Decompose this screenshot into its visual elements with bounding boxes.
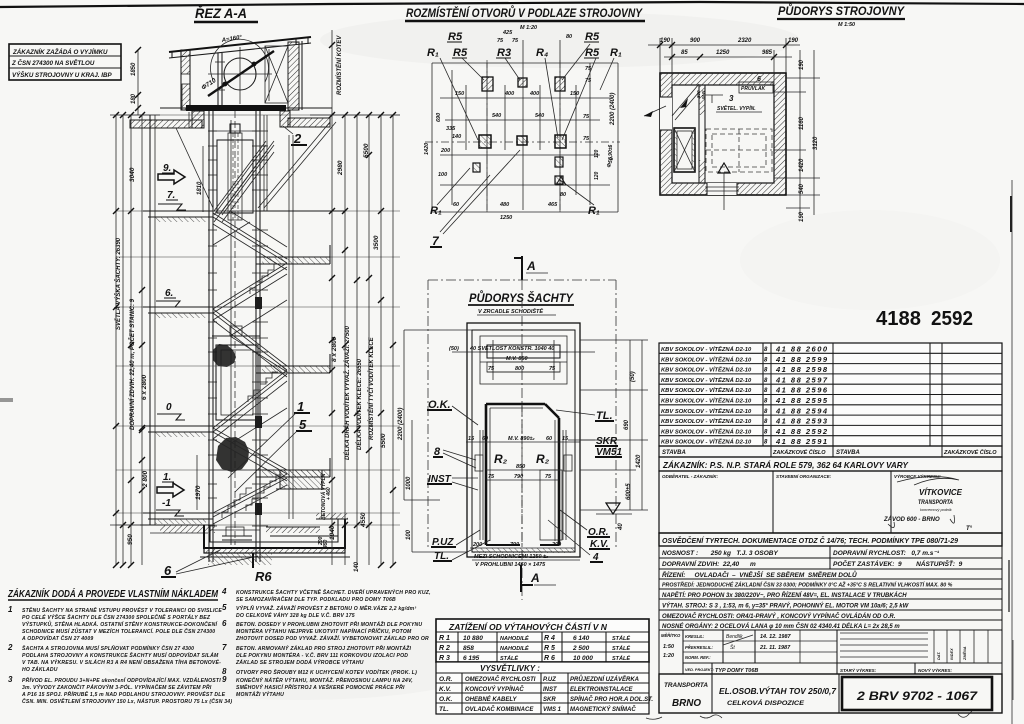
- svg-text:14. 12. 1987: 14. 12. 1987: [760, 634, 792, 640]
- svg-text:4: 4: [221, 587, 227, 596]
- svg-text:ŘEZ A-A: ŘEZ A-A: [195, 4, 247, 21]
- svg-text:KBV SOKOLOV - VÍTĚZNÁ D2-10: KBV SOKOLOV - VÍTĚZNÁ D2-10: [661, 417, 752, 425]
- svg-text:R6: R6: [255, 569, 272, 584]
- svg-text:KBV SOKOLOV - VÍTĚZNÁ D2-10: KBV SOKOLOV - VÍTĚZNÁ D2-10: [661, 407, 752, 415]
- svg-text:2320: 2320: [737, 38, 752, 44]
- svg-text:ROZMÍSTĚNÍ TYČÍ VODÍTEK KLECE: ROZMÍSTĚNÍ TYČÍ VODÍTEK KLECE: [367, 336, 375, 440]
- svg-text:41 88 2593: 41 88 2593: [775, 417, 829, 426]
- svg-text:R5: R5: [453, 47, 468, 59]
- svg-text:O.K.: O.K.: [439, 696, 453, 703]
- svg-text:MEZI SCHODNICEMI 1250 ±₂: MEZI SCHODNICEMI 1250 ±₂: [474, 554, 548, 560]
- svg-text:A ODPOVÍDAT ČSN 27 4009: A ODPOVÍDAT ČSN 27 4009: [21, 634, 93, 642]
- svg-text:2 BRV 9702 - 1067: 2 BRV 9702 - 1067: [856, 689, 979, 703]
- svg-text:K.V.: K.V.: [439, 686, 451, 693]
- svg-text:540: 540: [492, 113, 501, 119]
- svg-text:465: 465: [547, 202, 558, 208]
- svg-text:koncernový podnik: koncernový podnik: [920, 508, 953, 512]
- svg-text:ODBĚRATEL - ZÁKAZNÍK:: ODBĚRATEL - ZÁKAZNÍK:: [662, 472, 719, 479]
- svg-text:950: 950: [127, 534, 134, 545]
- svg-text:PŘÍVOD EL. PROUDU 3+N+PE ukonč: PŘÍVOD EL. PROUDU 3+N+PE ukončenÍ ODPOVÍ…: [22, 676, 221, 684]
- svg-text:1970: 1970: [195, 485, 202, 500]
- svg-text:NORM. REF.:: NORM. REF.:: [685, 655, 711, 660]
- svg-text:STĚNU ŠACHTY NA STRANĚ VSTUPU: STĚNU ŠACHTY NA STRANĚ VSTUPU PROVÉST V …: [22, 606, 222, 614]
- svg-text:R 6: R 6: [544, 655, 555, 662]
- svg-text:75: 75: [488, 474, 495, 480]
- svg-text:R5: R5: [585, 31, 600, 43]
- svg-text:3: 3: [729, 94, 734, 103]
- svg-text:41 88 2591: 41 88 2591: [775, 437, 829, 446]
- svg-text:150: 150: [570, 91, 579, 97]
- svg-text:ZÁKAZNÍK: P.S. N.P. STARÁ ROL: ZÁKAZNÍK: P.S. N.P. STARÁ ROLE 579, 362 …: [662, 460, 909, 470]
- svg-text:CELKOVÁ DISPOZICE: CELKOVÁ DISPOZICE: [727, 700, 805, 707]
- svg-text:R₁: R₁: [610, 47, 622, 59]
- svg-text:41 88 2594: 41 88 2594: [775, 406, 829, 415]
- svg-text:MONTÉRA VÝTAHU NEJPRVE UKOTVIT: MONTÉRA VÝTAHU NEJPRVE UKOTVIT NAPÍNACÍ …: [236, 627, 412, 635]
- svg-text:75: 75: [549, 366, 556, 372]
- svg-text:DÉLKA VODÍTEK KLECE: 26550: DÉLKA VODÍTEK KLECE: 26550: [355, 358, 363, 450]
- svg-text:140: 140: [452, 134, 461, 140]
- svg-text:800: 800: [515, 366, 524, 372]
- svg-text:6.: 6.: [165, 288, 173, 299]
- svg-text:M.V. 850: M.V. 850: [506, 356, 528, 362]
- svg-text:7: 7: [222, 643, 227, 652]
- svg-text:ZAKÁZKOVÉ ČÍSLO: ZAKÁZKOVÉ ČÍSLO: [772, 448, 826, 456]
- svg-text:985: 985: [762, 50, 773, 56]
- svg-text:ŠACHTA A STROJOVNA MUSÍ SPLŇOV: ŠACHTA A STROJOVNA MUSÍ SPLŇOVAT PODMÍNK…: [22, 644, 194, 652]
- svg-text:VYSVĚTLIVKY :: VYSVĚTLIVKY :: [480, 664, 540, 673]
- svg-text:A P16 15 SPOJ. PŘÍRUBĚ 1,5 m N: A P16 15 SPOJ. PŘÍRUBĚ 1,5 m NAD PODLAHO…: [21, 690, 226, 698]
- svg-text:6 195: 6 195: [463, 655, 480, 662]
- svg-text:NOSNOST : 250 kg T.J.: NOSNOST : 250 kg T.J. 3 OSOBY: [662, 550, 778, 557]
- svg-text:DÉLKA DRÁH VODÍTEK VYVAŽ. ZÁVA: DÉLKA DRÁH VODÍTEK VYVAŽ. ZÁVAŽÍ: 27500: [343, 325, 351, 460]
- svg-text:5: 5: [222, 603, 227, 612]
- svg-text:41 88 2599: 41 88 2599: [775, 355, 829, 364]
- svg-text:V TAB. NA VÝKRESU. V SILÁCH R3: V TAB. NA VÝKRESU. V SILÁCH R3 A R4 NENÍ…: [22, 658, 221, 666]
- svg-text:60: 60: [453, 202, 459, 208]
- svg-text:R 2: R 2: [439, 645, 450, 652]
- svg-text:STÁLÉ: STÁLÉ: [612, 634, 630, 642]
- svg-text:SKR: SKR: [543, 697, 556, 703]
- svg-text:R5: R5: [448, 31, 463, 43]
- svg-text:21. 11. 1987: 21. 11. 1987: [759, 645, 791, 651]
- svg-text:6 x 2800: 6 x 2800: [141, 374, 148, 400]
- svg-text:40 SVĚTLOST KONSTR. 1040 40: 40 SVĚTLOST KONSTR. 1040 40: [469, 344, 554, 352]
- svg-text:2 500: 2 500: [572, 645, 590, 652]
- svg-text:140: 140: [354, 561, 360, 572]
- svg-text:KONSTRUKCE ŠACHTY VČETNĚ ŠACHE: KONSTRUKCE ŠACHTY VČETNĚ ŠACHET. DVEŘÍ U…: [236, 588, 431, 596]
- svg-text:M 1:20: M 1:20: [520, 25, 537, 31]
- svg-text:KBV SOKOLOV - VÍTĚZNÁ D2-10: KBV SOKOLOV - VÍTĚZNÁ D2-10: [661, 427, 752, 435]
- svg-text:-1: -1: [162, 498, 171, 509]
- svg-text:VÝPLŇ VYVAŽ. ZÁVAŽÍ PROVÉST Z: VÝPLŇ VYVAŽ. ZÁVAŽÍ PROVÉST Z BETONU O M…: [236, 604, 416, 612]
- svg-text:2: 2: [7, 643, 13, 652]
- svg-text:STAVEBNÍ ORGANIZACE:: STAVEBNÍ ORGANIZACE:: [776, 473, 832, 479]
- svg-text:100: 100: [406, 529, 412, 540]
- svg-text:KBV SOKOLOV - VÍTĚZNÁ D2-10: KBV SOKOLOV - VÍTĚZNÁ D2-10: [661, 366, 752, 374]
- svg-text:NAHODILÉ: NAHODILÉ: [500, 644, 529, 652]
- svg-text:120: 120: [594, 171, 600, 180]
- svg-text:SPÍNAČ PRO HOR.A DOL.ST.: SPÍNAČ PRO HOR.A DOL.ST.: [570, 695, 653, 703]
- svg-text:A: A: [530, 571, 540, 585]
- svg-text:DOPRAVNÍ ZDVIH: 22,40 m: DOPRAVNÍ ZDVIH: 22,40 m: [662, 559, 756, 568]
- svg-text:1.: 1.: [163, 472, 171, 483]
- svg-text:BRNO: BRNO: [672, 698, 701, 709]
- svg-text:M.N.: M.N.: [701, 90, 706, 100]
- svg-text:900: 900: [690, 38, 701, 44]
- svg-text:75: 75: [585, 78, 592, 84]
- svg-text:OTVORY PRO ŠROUBY M12 K UCHYCE: OTVORY PRO ŠROUBY M12 K UCHYCENÍ KOTEV V…: [236, 668, 417, 676]
- svg-text:ZAKÁZKOVÉ ČÍSLO: ZAKÁZKOVÉ ČÍSLO: [943, 448, 997, 456]
- svg-text:KONCOVÝ VYPÍNAČ: KONCOVÝ VYPÍNAČ: [465, 685, 524, 693]
- svg-text:1040: 1040: [329, 525, 336, 540]
- svg-text:R3: R3: [497, 47, 511, 59]
- svg-text:200: 200: [472, 542, 482, 548]
- svg-text:INDEX: INDEX: [950, 648, 954, 660]
- svg-text:40: 40: [618, 523, 624, 531]
- svg-text:150: 150: [455, 91, 464, 97]
- svg-text:R₁: R₁: [588, 205, 600, 217]
- svg-text:V ZRCADLE SCHODIŠTĚ: V ZRCADLE SCHODIŠTĚ: [478, 307, 543, 315]
- svg-text:+ 460: + 460: [326, 487, 332, 500]
- svg-text:VÍTKOVICE: VÍTKOVICE: [919, 487, 962, 497]
- svg-text:STAVBA: STAVBA: [662, 450, 686, 456]
- svg-text:200: 200: [551, 542, 561, 548]
- svg-text:T°: T°: [966, 526, 973, 532]
- svg-text:400: 400: [529, 91, 539, 97]
- svg-text:1:20: 1:20: [663, 653, 674, 659]
- svg-text:3040: 3040: [129, 167, 136, 182]
- svg-text:6: 6: [164, 563, 172, 578]
- svg-text:4550: 4550: [360, 512, 367, 528]
- svg-text:1:50: 1:50: [663, 644, 674, 650]
- svg-text:41 88 2598: 41 88 2598: [775, 365, 829, 374]
- svg-text:R 3: R 3: [439, 655, 450, 662]
- svg-text:OHEBNÉ KABELY: OHEBNÉ KABELY: [465, 695, 518, 703]
- svg-text:SMĚHOVÝ HASICÍ PŘÍSTROJ A VEŠK: SMĚHOVÝ HASICÍ PŘÍSTROJ A VEŠKERÉ POMOCN…: [236, 683, 405, 691]
- svg-text:75: 75: [583, 114, 590, 120]
- svg-text:120: 120: [594, 149, 600, 158]
- svg-text:O.R.: O.R.: [439, 676, 453, 683]
- svg-text:15: 15: [562, 436, 569, 442]
- svg-text:STÁLÉ: STÁLÉ: [612, 654, 630, 662]
- svg-text:POČET ZASTÁVEK: 9 NÁST: POČET ZASTÁVEK: 9 NÁSTUPIŠŤ: 9: [833, 559, 963, 568]
- svg-text:2: 2: [293, 131, 302, 146]
- svg-text:R 4: R 4: [544, 635, 555, 642]
- svg-text:KBV SOKOLOV - VÍTĚZNÁ D2-10: KBV SOKOLOV - VÍTĚZNÁ D2-10: [661, 355, 752, 363]
- svg-text:ZHOTOVIT DOSED POD VYVAŽ. ZÁVA: ZHOTOVIT DOSED POD VYVAŽ. ZÁVAŽÍ. VYBETO…: [235, 634, 429, 642]
- svg-text:450: 450: [323, 539, 329, 549]
- svg-text:6: 6: [222, 619, 227, 628]
- svg-text:R₁: R₁: [430, 205, 442, 217]
- svg-text:MONTÁŽI VÝTAHU: MONTÁŽI VÝTAHU: [236, 690, 284, 698]
- svg-text:ZMĚNA: ZMĚNA: [962, 646, 967, 661]
- svg-text:VÝŠKU STROJOVNY U KRAJ. IBP: VÝŠKU STROJOVNY U KRAJ. IBP: [12, 71, 112, 79]
- svg-text:STÁLÉ: STÁLÉ: [612, 644, 630, 652]
- svg-text:ZÁKAZNÍK ZAŽÁDÁ O VYJÍMKU: ZÁKAZNÍK ZAŽÁDÁ O VYJÍMKU: [12, 48, 108, 56]
- svg-text:80: 80: [560, 192, 566, 198]
- svg-text:M.V. 890±₂: M.V. 890±₂: [508, 436, 535, 442]
- svg-text:0: 0: [166, 402, 172, 413]
- svg-text:85: 85: [681, 50, 688, 56]
- svg-text:DAT.: DAT.: [937, 652, 941, 660]
- svg-text:1420: 1420: [636, 454, 642, 468]
- svg-text:1250: 1250: [500, 215, 512, 221]
- svg-text:BETON. ARMOVANÝ ZÁKLAD PRO STR: BETON. ARMOVANÝ ZÁKLAD PRO STROJ ZHOTOVI…: [236, 644, 411, 652]
- svg-text:1420: 1420: [424, 143, 430, 155]
- svg-text:2980: 2980: [337, 160, 344, 176]
- svg-text:HO ZÁKLADU: HO ZÁKLADU: [22, 666, 58, 673]
- svg-text:1250: 1250: [716, 50, 730, 56]
- svg-text:R₁: R₁: [427, 47, 439, 59]
- svg-text:OMEZOVAČ RYCHLOSTI: OMEZOVAČ RYCHLOSTI: [465, 675, 536, 683]
- svg-text:2592: 2592: [931, 308, 973, 330]
- svg-text:R₂: R₂: [494, 452, 508, 466]
- svg-text:2200 (2400): 2200 (2400): [398, 408, 404, 441]
- svg-text:DOPRAVNÍ RYCHLOST: 0,7 m.s⁻¹: DOPRAVNÍ RYCHLOST: 0,7 m.s⁻¹: [833, 548, 940, 557]
- svg-text:850: 850: [516, 464, 525, 470]
- svg-text:10 880: 10 880: [463, 635, 483, 642]
- svg-text:V PROHLUBNI 1460 × 1475: V PROHLUBNI 1460 × 1475: [475, 562, 546, 568]
- svg-text:M 1:50: M 1:50: [838, 22, 855, 28]
- svg-text:TL.: TL.: [439, 706, 449, 713]
- svg-text:700: 700: [510, 542, 519, 548]
- svg-text:KBV SOKOLOV - VÍTĚZNÁ D2-10: KBV SOKOLOV - VÍTĚZNÁ D2-10: [661, 438, 752, 446]
- svg-text:DO CELKOVÉ VÁHY 328 kg DLE V.: DO CELKOVÉ VÁHY 328 kg DLE V.Č. BRV 175: [236, 611, 355, 619]
- svg-text:PRŮJEZDNÍ UZÁVĚRKA: PRŮJEZDNÍ UZÁVĚRKA: [570, 675, 639, 683]
- svg-text:KBV SOKOLOV - VÍTĚZNÁ D2-10: KBV SOKOLOV - VÍTĚZNÁ D2-10: [661, 345, 752, 353]
- svg-text:425: 425: [502, 30, 513, 36]
- svg-text:ELEKTROINSTALACE: ELEKTROINSTALACE: [570, 687, 634, 693]
- svg-text:ZATÍŽENÍ OD VÝTAHOVÝCH ČÁSTÍ: ZATÍŽENÍ OD VÝTAHOVÝCH ČÁSTÍ V N: [448, 621, 608, 632]
- svg-text:A: A: [526, 259, 536, 273]
- svg-text:8 x 2800: 8 x 2800: [331, 336, 338, 362]
- svg-text:ZÁKLAD SE STROJEM DODÁ VÝROBCE: ZÁKLAD SE STROJEM DODÁ VÝROBCE VÝTAHU: [235, 659, 364, 666]
- svg-text:OVLADAČ KOMBINACE: OVLADAČ KOMBINACE: [465, 705, 534, 713]
- svg-text:1000: 1000: [406, 476, 412, 490]
- svg-text:80: 80: [566, 34, 572, 40]
- svg-text:VÝTAH. STROJ: S 3 , 1:53, m: VÝTAH. STROJ: S 3 , 1:53, m 6, γ=35° PRA…: [662, 603, 910, 610]
- svg-text:6,90±6: 6,90±6: [608, 145, 614, 160]
- svg-text:R5: R5: [585, 47, 600, 59]
- svg-text:2 800: 2 800: [142, 470, 149, 488]
- svg-text:1850: 1850: [131, 62, 137, 76]
- svg-text:DLE POKYNU MONTÉRA - V.Č. BRV: DLE POKYNU MONTÉRA - V.Č. BRV 111 KORKOV…: [236, 651, 408, 659]
- svg-text:SE SAMOZAVÍRAČEM DLE TYP. PODK: SE SAMOZAVÍRAČEM DLE TYP. PODKLADU PRO D…: [236, 595, 396, 603]
- svg-text:(50): (50): [630, 371, 636, 382]
- svg-text:ZÁVOD 600 - BRNO: ZÁVOD 600 - BRNO: [883, 516, 940, 523]
- svg-text:INST: INST: [543, 687, 558, 693]
- svg-text:BETON. DOSEDY V PROHLUBNI ZHOT: BETON. DOSEDY V PROHLUBNI ZHOTOVIT PŘI M…: [236, 620, 422, 628]
- svg-text:10 000: 10 000: [573, 655, 593, 662]
- svg-text:6: 6: [757, 76, 761, 83]
- svg-text:PROSTŘEDÍ: JEDNODUCHÉ ZÁKLADNÍ: PROSTŘEDÍ: JEDNODUCHÉ ZÁKLADNÍ ČSN 33 03…: [662, 581, 953, 589]
- svg-text:NAPĚTÍ: PRO POHON 3x 380/220V: NAPĚTÍ: PRO POHON 3x 380/220V~, PRO ŘÍZE…: [662, 591, 907, 599]
- svg-text:2200 (2400): 2200 (2400): [610, 93, 616, 126]
- svg-text:OSVĚDČENÍ TYRTECH. DOKUMENTACE: OSVĚDČENÍ TYRTECH. DOKUMENTACE OTDZ Č 14…: [662, 536, 958, 545]
- svg-text:PŮDORYS STROJOVNY: PŮDORYS STROJOVNY: [778, 2, 905, 18]
- svg-text:STAVBA: STAVBA: [836, 450, 860, 456]
- svg-text:5: 5: [299, 417, 307, 432]
- svg-text:60: 60: [546, 436, 552, 442]
- svg-text:NAHODILÉ: NAHODILÉ: [500, 634, 529, 642]
- svg-text:PRŮVLAK: PRŮVLAK: [741, 84, 766, 92]
- svg-text:41 88 2595: 41 88 2595: [775, 396, 829, 405]
- svg-text:DOPRAVNÍ ZDVIH: 22,40 m, POČE: DOPRAVNÍ ZDVIH: 22,40 m, POČET STANIC: 9: [128, 298, 136, 430]
- svg-text:VÝROBCE VÝKRESU:: VÝROBCE VÝKRESU:: [894, 473, 941, 479]
- svg-text:ROZMÍSTĚNÍ OTVORŮ V PODLAZE ST: ROZMÍSTĚNÍ OTVORŮ V PODLAZE STROJOVNY: [406, 4, 643, 20]
- svg-text:600±5: 600±5: [626, 483, 632, 500]
- svg-text:5500: 5500: [380, 433, 387, 448]
- svg-text:PŮDORYS ŠACHTY: PŮDORYS ŠACHTY: [469, 289, 574, 305]
- svg-text:4188: 4188: [876, 308, 921, 330]
- svg-text:Z ČSN 274300 NA SVĚTLOU: Z ČSN 274300 NA SVĚTLOU: [11, 59, 95, 67]
- svg-text:15: 15: [468, 436, 475, 442]
- svg-text:NOVÝ VÝKRES:: NOVÝ VÝKRES:: [918, 667, 953, 673]
- svg-text:190: 190: [788, 38, 799, 44]
- svg-text:KBV SOKOLOV - VÍTĚZNÁ D2-10: KBV SOKOLOV - VÍTĚZNÁ D2-10: [661, 376, 752, 384]
- svg-text:TRANSPORTA: TRANSPORTA: [664, 682, 708, 689]
- svg-text:R 1: R 1: [439, 635, 450, 642]
- svg-text:41 88 2592: 41 88 2592: [775, 427, 829, 436]
- svg-text:SVĚTEL. VYPÍN.: SVĚTEL. VYPÍN.: [717, 104, 756, 112]
- svg-text:1420: 1420: [799, 158, 805, 172]
- svg-text:200: 200: [440, 148, 450, 154]
- svg-text:1810: 1810: [197, 181, 203, 195]
- svg-text:1: 1: [8, 605, 13, 614]
- svg-text:MĚŘÍTKO: MĚŘÍTKO: [661, 633, 681, 638]
- svg-text:SCHODNICE MUSÍ ZŮSTAT V MEZÍCH: SCHODNICE MUSÍ ZŮSTAT V MEZÍCH TOLERANCÍ…: [22, 627, 215, 635]
- svg-text:3500: 3500: [373, 235, 380, 250]
- svg-text:1: 1: [297, 399, 304, 414]
- svg-text:3m. VÝVODY ZAKONČIT PÁKOVÝM 3-: 3m. VÝVODY ZAKONČIT PÁKOVÝM 3-PÓL. VYPÍN…: [22, 683, 212, 691]
- svg-text:KBV SOKOLOV - VÍTĚZNÁ D2-10: KBV SOKOLOV - VÍTĚZNÁ D2-10: [661, 386, 752, 394]
- svg-text:VÝSTUPKŮ, STĚNA HLADKÁ. OSTATN: VÝSTUPKŮ, STĚNA HLADKÁ. OSTATNÍ STĚNY KO…: [22, 620, 218, 628]
- svg-text:480: 480: [499, 202, 509, 208]
- svg-text:STÁLÉ: STÁLÉ: [500, 654, 518, 662]
- svg-text:3120: 3120: [813, 136, 819, 150]
- svg-text:9.: 9.: [163, 163, 171, 174]
- svg-text:SVĚTLÁ VÝŠKA ŠACHTY: 26390: SVĚTLÁ VÝŠKA ŠACHTY: 26390: [114, 237, 122, 330]
- svg-text:PODLAHA STROJOVNY A KONSTRUKCE: PODLAHA STROJOVNY A KONSTRUKCE ŠACHTY MU…: [22, 651, 219, 659]
- svg-text:41 88 2600: 41 88 2600: [775, 345, 829, 354]
- svg-text:PŘEKRESLIL:: PŘEKRESLIL:: [685, 645, 714, 650]
- svg-text:Št: Št: [730, 644, 735, 651]
- svg-text:400: 400: [504, 91, 514, 97]
- svg-text:75: 75: [585, 66, 592, 72]
- svg-text:KBV SOKOLOV - VÍTĚZNÁ D2-10: KBV SOKOLOV - VÍTĚZNÁ D2-10: [661, 397, 752, 405]
- svg-text:ROZMÍSTĚNÍ KOTEV: ROZMÍSTĚNÍ KOTEV: [335, 35, 343, 95]
- svg-text:VED. PROJEKT:: VED. PROJEKT:: [685, 668, 715, 672]
- svg-text:75: 75: [497, 38, 504, 44]
- svg-text:R₂: R₂: [536, 452, 550, 466]
- svg-text:75: 75: [583, 136, 590, 142]
- svg-text:41 88 2597: 41 88 2597: [775, 375, 829, 384]
- svg-text:41 88 2596: 41 88 2596: [775, 386, 829, 395]
- svg-text:690: 690: [436, 113, 442, 122]
- svg-text:9: 9: [222, 675, 227, 684]
- svg-text:VMS 1: VMS 1: [543, 707, 562, 713]
- svg-text:TYP DOMY T06B: TYP DOMY T06B: [715, 668, 758, 674]
- svg-text:P.UZ: P.UZ: [543, 677, 556, 683]
- svg-text:5500: 5500: [363, 143, 370, 158]
- svg-text:190: 190: [660, 38, 671, 44]
- svg-text:KONEČNÝ NÁTĚR VÝTAHU, MONTÁŽ.: KONEČNÝ NÁTĚR VÝTAHU, MONTÁŽ. PŘENOSNOU …: [236, 676, 413, 684]
- svg-text:R₄: R₄: [536, 47, 548, 59]
- svg-text:OMEZOVAČ RYCHLOSTI: OR4/1-PRAV: OMEZOVAČ RYCHLOSTI: OR4/1-PRAVÝ , KONCOV…: [662, 612, 896, 620]
- svg-text:6 140: 6 140: [573, 635, 590, 642]
- svg-text:KRESLIL:: KRESLIL:: [685, 634, 705, 639]
- svg-text:75: 75: [545, 474, 552, 480]
- svg-text:(50): (50): [449, 346, 459, 352]
- svg-text:3: 3: [8, 675, 13, 684]
- svg-text:MAGNETICKÝ SNÍMAČ: MAGNETICKÝ SNÍMAČ: [570, 705, 636, 713]
- svg-text:NOSNÉ ORGÁNY: 2 OCELOVÁ LANA φ: NOSNÉ ORGÁNY: 2 OCELOVÁ LANA φ 10 mm ČSN…: [662, 622, 900, 630]
- svg-text:100: 100: [438, 172, 447, 178]
- svg-text:EL.OSOB.VÝTAH TOV 250/0,7: EL.OSOB.VÝTAH TOV 250/0,7: [719, 686, 837, 696]
- svg-text:ZÁKAZNÍK DODÁ A PROVEDE VLAST: ZÁKAZNÍK DODÁ A PROVEDE VLASTNÍM NÁKLADE…: [7, 587, 218, 600]
- svg-text:190: 190: [799, 59, 805, 70]
- svg-text:790: 790: [514, 474, 523, 480]
- svg-text:858: 858: [463, 645, 474, 652]
- svg-text:ČSN. MIN. OSVĚTLENÍ STROJOVNY: ČSN. MIN. OSVĚTLENÍ STROJOVNY 150 Lx, NÁ…: [22, 697, 232, 705]
- svg-text:540: 540: [799, 183, 805, 194]
- svg-text:190: 190: [799, 211, 805, 222]
- svg-text:75: 75: [488, 366, 495, 372]
- svg-text:180: 180: [131, 93, 137, 104]
- svg-text:TRANSPORTA: TRANSPORTA: [918, 499, 953, 506]
- svg-text:7.: 7.: [167, 190, 175, 201]
- svg-text:60: 60: [482, 436, 488, 442]
- svg-text:R 5: R 5: [544, 645, 555, 652]
- svg-text:1160: 1160: [799, 116, 805, 130]
- svg-text:75: 75: [512, 38, 519, 44]
- svg-text:540: 540: [535, 113, 544, 119]
- svg-text:PO CELÉ VÝŠCE ŠACHTY DLE ČSN 2: PO CELÉ VÝŠCE ŠACHTY DLE ČSN 274300 SPOL…: [22, 613, 211, 621]
- svg-text:STARÝ VÝKRES:: STARÝ VÝKRES:: [840, 667, 877, 673]
- svg-text:690: 690: [624, 419, 630, 430]
- svg-text:335: 335: [446, 126, 456, 132]
